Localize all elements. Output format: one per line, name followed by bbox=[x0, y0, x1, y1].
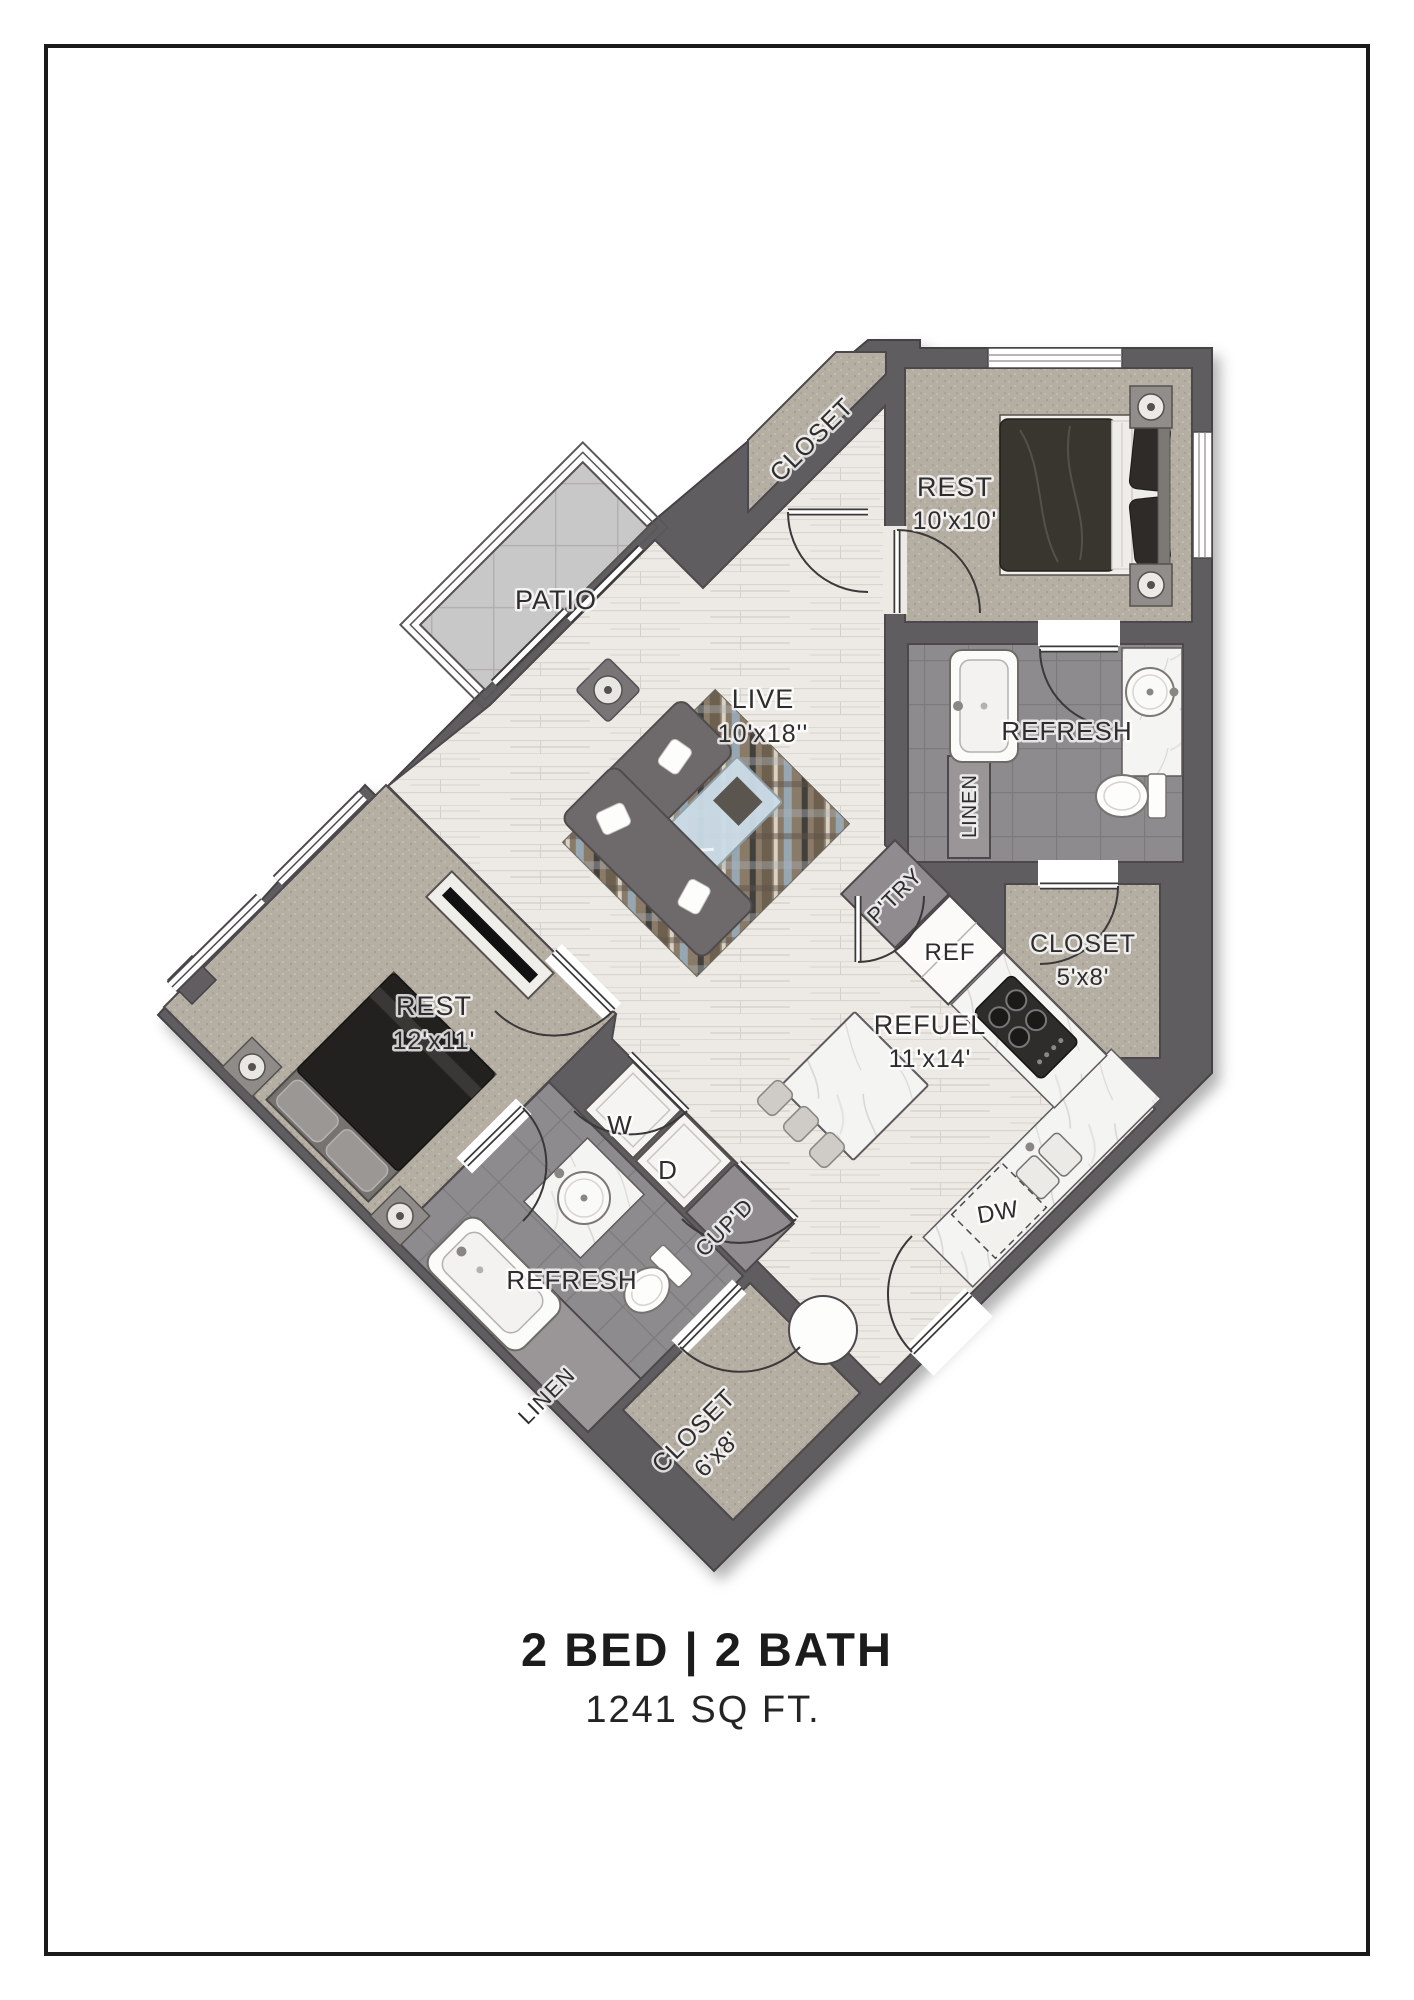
nightstand1-a bbox=[1130, 386, 1172, 428]
nightstand1-b bbox=[1130, 564, 1172, 606]
washer-label: W bbox=[607, 1110, 633, 1140]
dryer-label: D bbox=[658, 1155, 678, 1185]
vanity-sink1 bbox=[1122, 648, 1182, 776]
closet1-dims: 5'x8' bbox=[1057, 964, 1110, 991]
kitchen-dims: 11'x14' bbox=[889, 1045, 972, 1073]
closet1-label: CLOSET bbox=[1030, 930, 1136, 958]
toilet1 bbox=[1096, 774, 1166, 818]
patio-label: PATIO bbox=[515, 585, 597, 615]
bedroom1-dims: 10'x10' bbox=[913, 507, 998, 535]
bath1-label: REFRESH bbox=[1001, 716, 1132, 746]
floor-plan-canvas: PATIO CLOSET REST 10'x10' LIVE 10'x18'' … bbox=[0, 0, 1414, 2000]
caption-title: 2 BED | 2 BATH bbox=[521, 1623, 893, 1676]
fridge-label: REF bbox=[925, 939, 976, 966]
floor-plan-page: PATIO CLOSET REST 10'x10' LIVE 10'x18'' … bbox=[0, 0, 1414, 2000]
entry-table bbox=[789, 1296, 857, 1364]
bath2-label: REFRESH bbox=[506, 1265, 637, 1295]
caption-area: 1241 SQ FT. bbox=[585, 1689, 820, 1731]
bed1 bbox=[1000, 415, 1171, 575]
living-dims: 10'x18'' bbox=[718, 720, 808, 748]
bedroom1-label: REST bbox=[917, 472, 993, 502]
living-label: LIVE bbox=[732, 684, 795, 714]
linen1-label: LINEN bbox=[959, 774, 981, 838]
kitchen-label: REFUEL bbox=[874, 1010, 987, 1040]
bedroom2-label: REST bbox=[396, 991, 472, 1021]
bedroom2-dims: 12'x11' bbox=[393, 1027, 476, 1055]
